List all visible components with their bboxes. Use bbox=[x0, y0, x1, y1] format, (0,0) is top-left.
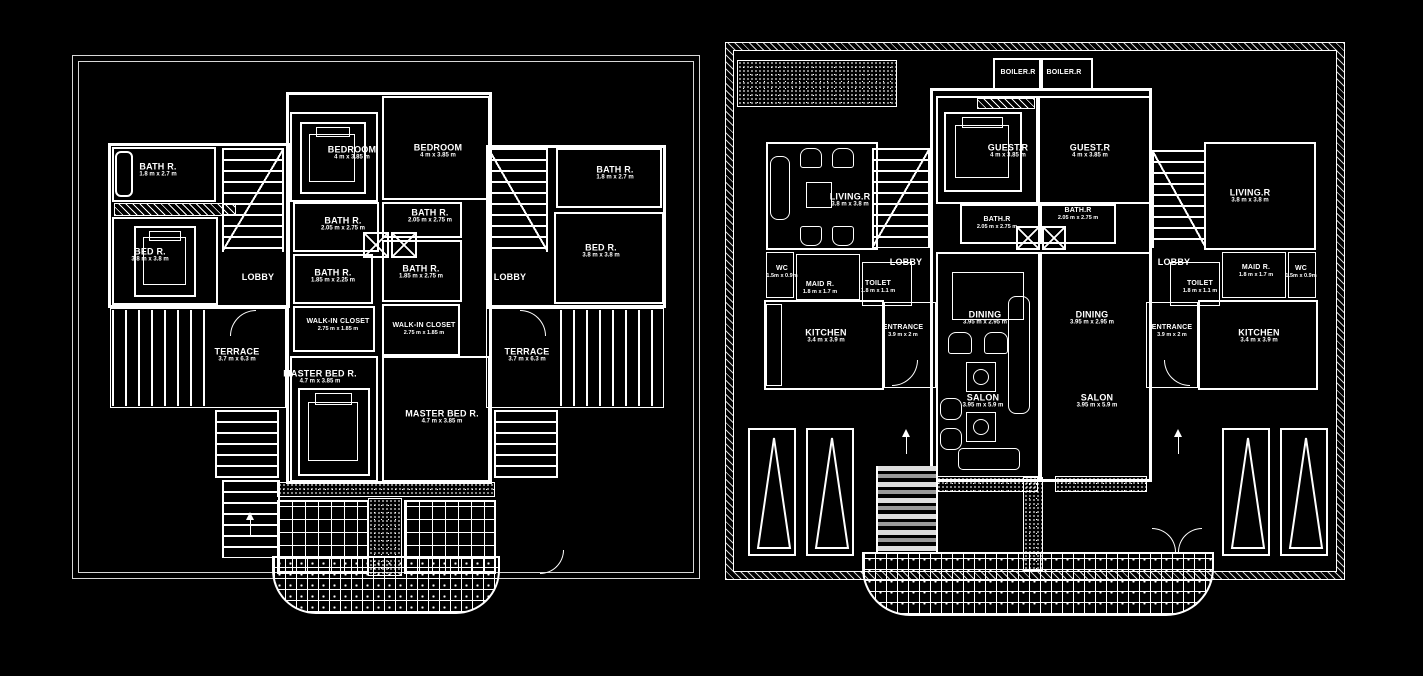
room-label: MASTER BED R.4.7 m x 3.85 m bbox=[405, 408, 479, 425]
sofa-icon bbox=[770, 156, 790, 220]
room-label: LOBBY bbox=[242, 272, 275, 282]
coffee-table-icon bbox=[806, 182, 832, 208]
shaft-x-gf bbox=[1042, 226, 1066, 250]
kitchen-left bbox=[764, 300, 884, 390]
sofa-icon bbox=[958, 448, 1020, 470]
room-label: WC1.5m x 0.9m bbox=[766, 265, 797, 279]
room-label: LOBBY bbox=[494, 272, 527, 282]
room-label: SALON3.95 m x 5.9 m bbox=[963, 392, 1004, 409]
parking-triangle-icon bbox=[750, 430, 798, 558]
parking-triangle-icon bbox=[1282, 430, 1330, 558]
armchair-icon bbox=[800, 148, 822, 168]
room-label: BATH.R2.05 m x 2.75 m bbox=[1058, 207, 1098, 221]
room-label: TOILET1.8 m x 1.1 m bbox=[861, 280, 895, 294]
room-label: DINING3.95 m x 2.95 m bbox=[963, 309, 1007, 326]
armchair-icon bbox=[832, 226, 854, 246]
entry-wood-steps bbox=[876, 466, 938, 552]
stair-flight-line bbox=[872, 148, 930, 248]
room-label: BATH R.1.85 m x 2.25 m bbox=[311, 267, 355, 284]
room-label: MAID R.1.8 m x 1.7 m bbox=[1239, 264, 1273, 278]
closet-row-guest bbox=[977, 98, 1035, 109]
room-label: BOILER.R bbox=[1046, 69, 1081, 77]
room-label: TERRACE3.7 m x 6.3 m bbox=[505, 346, 550, 363]
planter-band bbox=[1055, 476, 1147, 492]
parking-triangle-icon bbox=[808, 430, 856, 558]
room-label: DINING3.95 m x 2.95 m bbox=[1070, 309, 1114, 326]
curved-balcony bbox=[272, 556, 500, 614]
parking-space bbox=[748, 428, 796, 556]
room-label: WC1.5m x 0.9m bbox=[1285, 265, 1316, 279]
room-label: GUEST.R4 m x 3.85 m bbox=[988, 142, 1028, 159]
round-table-icon bbox=[973, 419, 989, 435]
room-label: KITCHEN3.4 m x 3.9 m bbox=[805, 327, 846, 344]
room-label: BEDROOM4 m x 3.85 m bbox=[414, 142, 462, 159]
room-label: SALON3.95 m x 5.9 m bbox=[1077, 392, 1118, 409]
room-label: MAID R.1.8 m x 1.7 m bbox=[803, 281, 837, 295]
room-label: BOILER.R bbox=[1000, 69, 1035, 77]
parking-triangle-icon bbox=[1224, 430, 1272, 558]
parking-space bbox=[1280, 428, 1328, 556]
bed-icon bbox=[298, 388, 370, 476]
room-label: LOBBY bbox=[1158, 257, 1191, 267]
room-label: BEDROOM4 m x 3.85 m bbox=[328, 144, 376, 161]
terrace-steps-left bbox=[215, 410, 279, 478]
room-label: WALK-IN CLOSET2.75 m x 1.85 m bbox=[306, 318, 369, 332]
room-label: WALK-IN CLOSET2.75 m x 1.85 m bbox=[392, 322, 455, 336]
armchair-icon bbox=[800, 226, 822, 246]
pergola-stripes bbox=[112, 310, 215, 406]
room-label: BATH R.1.85 m x 2.75 m bbox=[399, 263, 443, 280]
room-label: MASTER BED R.4.7 m x 3.85 m bbox=[283, 368, 357, 385]
bathtub-icon bbox=[115, 151, 133, 197]
room-label: LOBBY bbox=[890, 257, 923, 267]
kitchen-counter bbox=[766, 304, 782, 386]
kitchen-right bbox=[1198, 300, 1318, 390]
stair-flight-line bbox=[1152, 150, 1206, 248]
armchair-icon bbox=[984, 332, 1008, 354]
room-label: TOILET1.8 m x 1.1 m bbox=[1183, 280, 1217, 294]
arrow-up-icon bbox=[1178, 432, 1179, 454]
dining-salon-right bbox=[1040, 252, 1152, 482]
room-label: BATH R.2.05 m x 2.75 m bbox=[321, 215, 365, 232]
sofa-icon bbox=[1008, 296, 1030, 414]
parking-space bbox=[1222, 428, 1270, 556]
room-label: BATH R.1.8 m x 2.7 m bbox=[139, 161, 176, 178]
room-label: TERRACE3.7 m x 6.3 m bbox=[215, 346, 260, 363]
planting-strip bbox=[737, 60, 897, 107]
room-label: GUEST.R4 m x 3.85 m bbox=[1070, 142, 1110, 159]
room-label: LIVING.R3.8 m x 3.8 m bbox=[830, 191, 871, 208]
arrow-up-icon bbox=[250, 515, 251, 537]
room-label: BED R.3.8 m x 3.8 m bbox=[582, 242, 619, 259]
room-label: BATH.R2.05 m x 2.75 m bbox=[977, 216, 1017, 230]
terrace-steps-right bbox=[494, 410, 558, 478]
armchair-icon bbox=[948, 332, 972, 354]
room-label: ENTRANCE3.9 m x 2 m bbox=[1152, 324, 1193, 338]
curved-terrace bbox=[862, 552, 1214, 616]
stair-flight-line bbox=[222, 148, 284, 252]
arrow-up-icon bbox=[906, 432, 907, 454]
room-label: ENTRANCE3.9 m x 2 m bbox=[883, 324, 924, 338]
planter-band bbox=[277, 482, 495, 497]
round-table-icon bbox=[973, 369, 989, 385]
parking-space bbox=[806, 428, 854, 556]
room-label: BED R.3.8 m x 3.8 m bbox=[131, 246, 168, 263]
shaft-x-gf bbox=[1016, 226, 1040, 250]
stair-flight-line bbox=[488, 148, 548, 252]
room-label: LIVING.R3.8 m x 3.8 m bbox=[1230, 187, 1271, 204]
pergola-stripes bbox=[560, 310, 662, 406]
room-label: KITCHEN3.4 m x 3.9 m bbox=[1238, 327, 1279, 344]
armchair-icon bbox=[940, 428, 962, 450]
room-label: BATH R.2.05 m x 2.75 m bbox=[408, 207, 452, 224]
cad-canvas: BATH R.1.8 m x 2.7 m BED R.3.8 m x 3.8 m… bbox=[0, 0, 1423, 676]
armchair-icon bbox=[832, 148, 854, 168]
closet-row-left-wing bbox=[114, 203, 236, 216]
armchair-icon bbox=[940, 398, 962, 420]
room-label: BATH R.1.8 m x 2.7 m bbox=[596, 164, 633, 181]
